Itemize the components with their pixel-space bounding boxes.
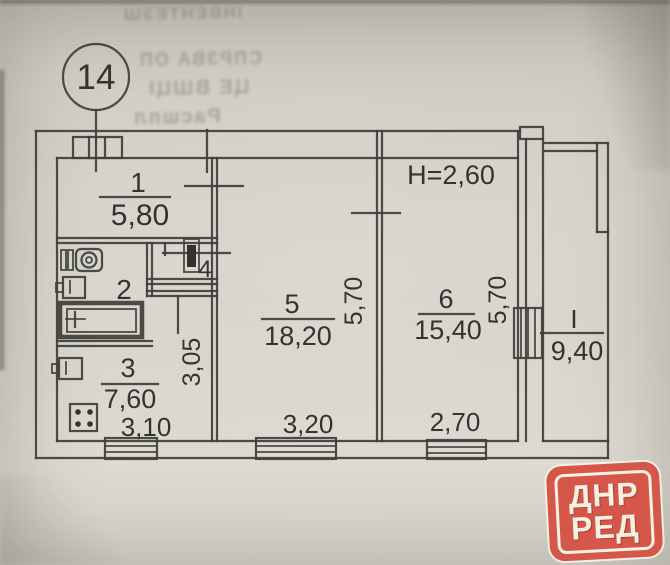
dim-kitchen-width: 3,10 [121, 412, 172, 442]
balcony-outline [543, 139, 608, 458]
bathtub-icon [60, 303, 142, 337]
room-6-area: 15,40 [414, 315, 482, 345]
room-6-label: 6 15,40 [414, 284, 482, 345]
room-2-label: 2 [116, 274, 132, 305]
room-3-label: 3 7,60 [102, 353, 158, 414]
bleed-through-text: ІНВЕНТЕЗШ [122, 3, 243, 25]
room-5-label: 5 18,20 [262, 289, 334, 351]
dim-room6-width: 2,70 [430, 407, 481, 437]
room-1-number: 1 [130, 167, 146, 198]
window-room6 [427, 440, 486, 459]
loggia-area: 9,40 [551, 336, 604, 366]
bleed-through-text: Расшпл [132, 105, 221, 130]
room-1-label: 1 5,80 [100, 167, 170, 232]
room-5-area: 18,20 [264, 321, 332, 351]
room-1-area: 5,80 [111, 199, 169, 232]
bleed-through-text: ЦЕ ВШЦІ [147, 76, 250, 101]
loggia-number: I [570, 304, 577, 334]
loggia-label: I 9,40 [541, 304, 603, 366]
room-2-number: 2 [116, 274, 132, 305]
room-5-number: 5 [284, 289, 299, 319]
dim-room5-width: 3,20 [283, 409, 334, 439]
entrance-door [73, 137, 122, 158]
watermark-line-2: РЕД [570, 510, 640, 545]
apartment-number: 14 [77, 58, 116, 97]
room-3-area: 7,60 [104, 384, 157, 414]
bathroom-sink-icon [56, 277, 85, 298]
room-3-number: 3 [120, 353, 135, 383]
room-4-number: 4 [198, 256, 211, 283]
toilet-icon [61, 249, 102, 271]
watermark-stamp-inner: ДНР РЕД [554, 469, 655, 554]
room-6-number: 6 [438, 284, 453, 314]
dim-room5-depth: 5,70 [340, 277, 368, 326]
floor-plan-photo: ІНВЕНТЕЗШ СПРЗВА ОП ЦЕ ВШЦІ Расшпл 14 [0, 0, 670, 565]
dim-room6-depth: 5,70 [484, 276, 512, 325]
room-4-label: 4 [198, 256, 211, 283]
bleed-through-text: СПРЗВА ОП [138, 48, 262, 71]
watermark-stamp: ДНР РЕД [546, 461, 664, 562]
stove-icon [70, 404, 97, 431]
ceiling-height-label: Н=2,60 [407, 160, 495, 190]
dim-kitchen-depth: 3,05 [178, 338, 206, 387]
